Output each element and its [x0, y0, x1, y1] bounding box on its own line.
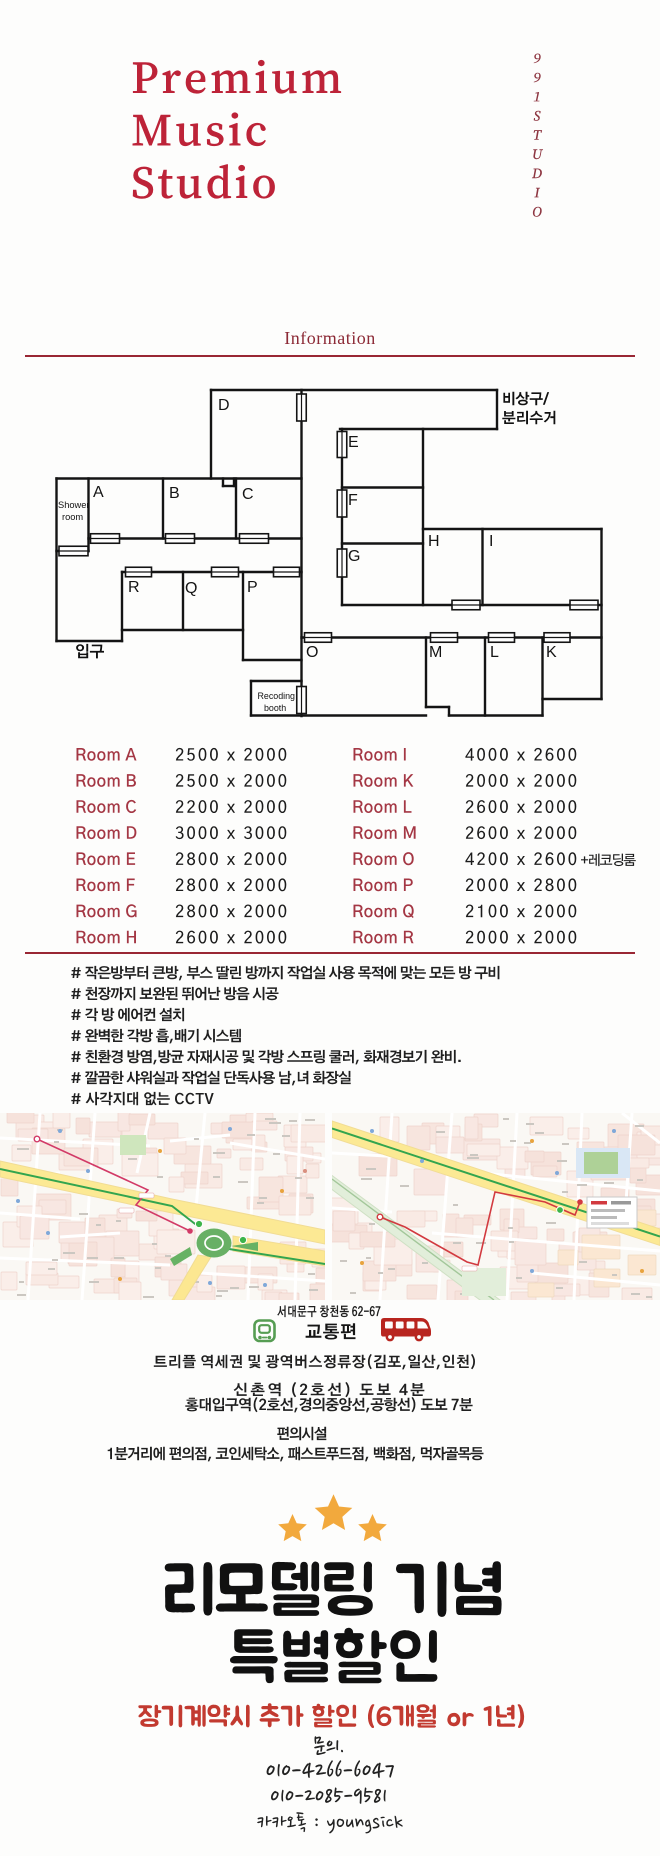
svg-text:L: L — [490, 644, 499, 661]
svg-text:I: I — [489, 533, 493, 550]
svg-text:R: R — [128, 579, 140, 596]
svg-text:C: C — [242, 486, 254, 503]
svg-text:O: O — [306, 644, 318, 661]
svg-text:booth: booth — [264, 703, 286, 713]
svg-text:D: D — [218, 397, 230, 414]
svg-text:A: A — [93, 484, 104, 501]
svg-text:K: K — [546, 644, 557, 661]
svg-text:P: P — [247, 579, 258, 596]
svg-text:H: H — [428, 533, 440, 550]
svg-text:G: G — [348, 548, 360, 565]
svg-text:F: F — [348, 492, 358, 509]
svg-text:M: M — [429, 644, 442, 661]
svg-text:B: B — [169, 485, 180, 502]
svg-text:Q: Q — [185, 580, 197, 597]
svg-text:E: E — [348, 434, 359, 451]
svg-text:Recoding: Recoding — [258, 691, 296, 701]
svg-text:Shower: Shower — [58, 500, 90, 510]
svg-text:room: room — [62, 512, 83, 522]
